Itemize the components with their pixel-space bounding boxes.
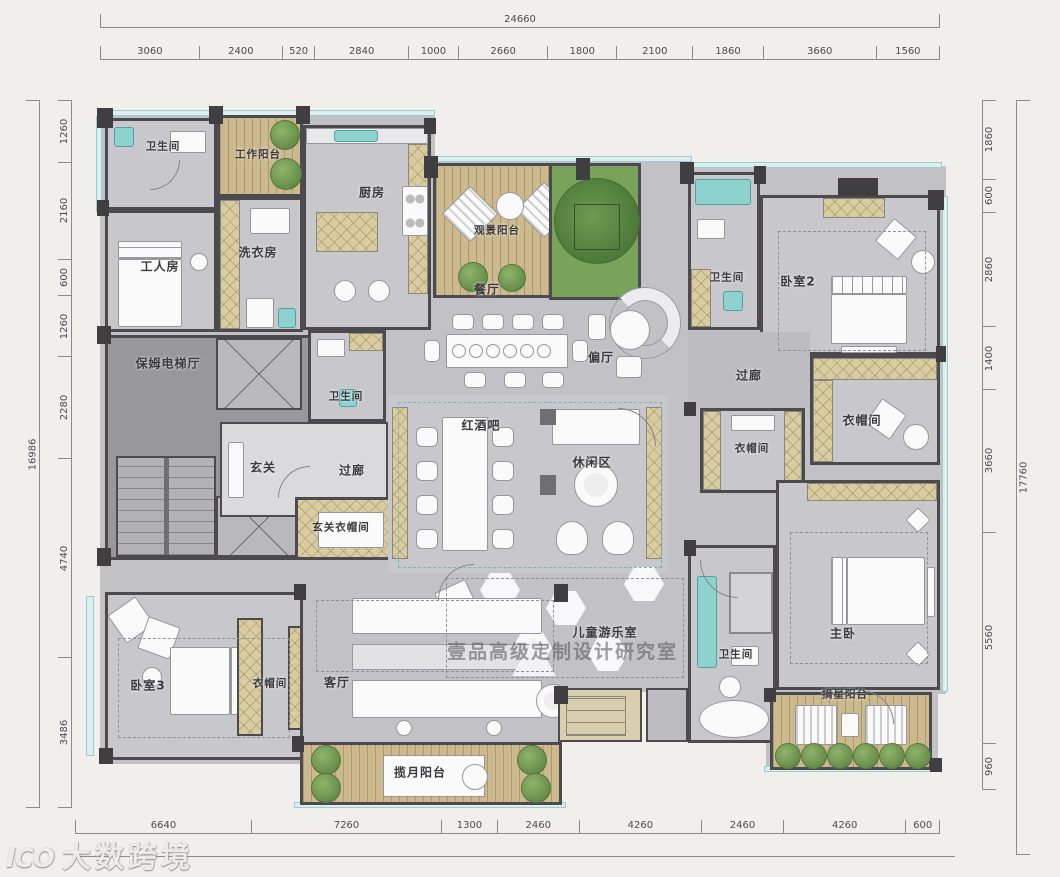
wardrobe xyxy=(784,411,802,490)
plant xyxy=(521,773,551,803)
room-label-cloakroom-middle: 衣帽间 xyxy=(735,441,770,456)
sofa xyxy=(352,680,542,718)
room-bathroom-bedroom2 xyxy=(688,172,760,330)
room-label-bathroom-bedroom2: 卫生间 xyxy=(710,270,745,285)
room-label-bathroom-foyer: 卫生间 xyxy=(329,389,364,404)
wardrobe xyxy=(703,411,721,490)
room-label-kitchen: 厨房 xyxy=(359,184,385,201)
balcony-table xyxy=(841,713,859,737)
wall-block xyxy=(554,584,568,602)
room-kitchen xyxy=(303,125,431,330)
dim-label: 2660 xyxy=(490,46,515,57)
wardrobe xyxy=(823,198,885,218)
laundry-sink xyxy=(278,308,296,328)
stool xyxy=(588,314,606,340)
plate xyxy=(537,344,551,358)
dim-label: 1800 xyxy=(570,46,595,57)
bench xyxy=(228,442,244,498)
stove xyxy=(402,186,428,236)
dim-label: 24660 xyxy=(504,14,536,25)
room-label-bedroom2: 卧室2 xyxy=(780,273,815,290)
dim-segment: 3486 xyxy=(58,657,71,808)
dim-label: 16986 xyxy=(27,438,38,470)
dim-segment: 1260 xyxy=(58,295,71,357)
plate xyxy=(452,344,466,358)
wall-block xyxy=(684,402,696,416)
room-label-cloakroom-bedroom3: 衣帽间 xyxy=(253,676,288,691)
wall-block xyxy=(684,540,696,556)
kitchen-island xyxy=(316,212,378,252)
room-label-worker-room: 工人房 xyxy=(140,258,179,275)
dim-segment: 1800 xyxy=(547,46,616,60)
wall-block xyxy=(99,748,113,764)
vanity xyxy=(349,333,383,351)
wall-block xyxy=(97,326,111,344)
wall-block xyxy=(97,108,113,128)
sink xyxy=(697,219,725,239)
wardrobe xyxy=(807,483,937,501)
plate xyxy=(469,344,483,358)
plant xyxy=(905,743,931,769)
room-label-work-balcony: 工作阳台 xyxy=(235,147,281,162)
dim-segment: 3660 xyxy=(983,389,996,532)
chair xyxy=(424,340,440,362)
dim-segment: 1860 xyxy=(983,100,996,179)
room-cloakroom-master xyxy=(810,355,940,465)
room-label-bathroom-master: 卫生间 xyxy=(719,647,754,662)
bench xyxy=(731,415,775,431)
candle-tray xyxy=(396,720,412,736)
room-label-moon-balcony: 揽月阳台 xyxy=(394,764,446,781)
room-label-foyer: 玄关 xyxy=(250,459,276,476)
dim-label: 2840 xyxy=(349,46,374,57)
chair xyxy=(464,372,486,388)
plant xyxy=(270,120,300,150)
ceiling-outline xyxy=(790,532,928,664)
wall-block xyxy=(936,346,946,362)
room-label-view-balcony: 观景阳台 xyxy=(474,223,520,238)
dim-label: 1260 xyxy=(59,119,70,144)
plant xyxy=(827,743,853,769)
wall-block xyxy=(209,106,223,124)
wall-block xyxy=(680,162,694,184)
brand-watermark: ICO 大数跨境 xyxy=(6,834,194,876)
dim-segment: 4740 xyxy=(58,458,71,657)
wall-block xyxy=(928,190,944,210)
dim-segment: 7260 xyxy=(251,820,441,834)
elevator-shaft xyxy=(216,338,302,410)
studio-watermark: 壹品高级定制设计研究室 xyxy=(447,637,678,664)
plant xyxy=(311,745,341,775)
dim-label: 2280 xyxy=(59,395,70,420)
room-label-corridor-right: 过廊 xyxy=(736,367,762,384)
toilet xyxy=(719,676,741,698)
dim-label: 3660 xyxy=(984,448,995,473)
dim-col-left: 126021606001260228047403486 xyxy=(58,100,72,808)
room-label-bedroom3: 卧室3 xyxy=(130,677,165,694)
dim-segment: 1300 xyxy=(441,820,497,834)
ceiling-outline xyxy=(778,231,926,351)
room-label-star-balcony: 摘星阳台 xyxy=(822,687,868,702)
stool xyxy=(334,280,356,302)
room-label-foyer-cloakroom: 玄关衣帽间 xyxy=(312,520,370,535)
dim-label: 2460 xyxy=(526,820,551,831)
dim-segment: 2100 xyxy=(616,46,692,60)
dim-label: 1260 xyxy=(59,313,70,338)
entry-landing xyxy=(646,688,688,742)
dim-label: 4260 xyxy=(832,820,857,831)
dim-label: 960 xyxy=(984,757,995,776)
dim-segment: 600 xyxy=(905,820,940,834)
dim-label: 4740 xyxy=(59,546,70,571)
dim-label: 1860 xyxy=(984,127,995,152)
candle-tray xyxy=(486,720,502,736)
round-table xyxy=(496,192,524,220)
room-label-cloakroom-master: 衣帽间 xyxy=(842,412,881,429)
dim-label: 2160 xyxy=(59,198,70,223)
round-table xyxy=(610,310,650,350)
wall-block xyxy=(424,156,438,178)
brand-watermark-text: 大数跨境 xyxy=(62,834,194,876)
window-strip xyxy=(96,116,102,212)
wall-block xyxy=(292,736,304,752)
room-label-side-hall: 偏厅 xyxy=(588,349,614,366)
wall-block xyxy=(97,200,109,216)
dim-label: 6640 xyxy=(151,820,176,831)
plant xyxy=(853,743,879,769)
plate xyxy=(520,344,534,358)
room-label-wine-bar: 红酒吧 xyxy=(461,417,500,434)
window-strip xyxy=(690,162,942,168)
chair xyxy=(504,372,526,388)
dim-segment: 1400 xyxy=(983,326,996,388)
brand-logo-icon: ICO xyxy=(6,844,54,874)
wall-block xyxy=(754,166,766,184)
dim-label: 3660 xyxy=(807,46,832,57)
room-label-bathroom-top-left: 卫生间 xyxy=(146,139,181,154)
planter-box xyxy=(574,204,620,250)
dim-segment: 2460 xyxy=(701,820,783,834)
floor-plan-canvas: 卫生间 工作阳台 厨房 工人房 洗衣房 观景阳台 餐厅 偏厅 卫生间 卧室2 保… xyxy=(0,0,1060,877)
plant xyxy=(498,264,526,292)
dim-segment: 5560 xyxy=(983,532,996,743)
wall-block xyxy=(296,106,310,124)
dim-label: 2400 xyxy=(228,46,253,57)
dim-label: 5560 xyxy=(984,625,995,650)
room-label-corridor-foyer: 过廊 xyxy=(339,462,365,479)
dim-segment: 600 xyxy=(58,259,71,295)
dim-col-right-total: 17760 xyxy=(1016,100,1030,855)
dim-segment: 2160 xyxy=(58,162,71,259)
dim-col-right: 18606002860140036605560960 xyxy=(982,100,996,790)
dim-label: 2100 xyxy=(642,46,667,57)
dim-segment: 520 xyxy=(282,46,314,60)
dim-segment: 960 xyxy=(983,743,996,790)
sink xyxy=(317,339,345,357)
room-label-dining: 餐厅 xyxy=(474,281,500,298)
stair-rail xyxy=(164,458,169,555)
sink xyxy=(334,130,378,142)
side-table xyxy=(190,253,208,271)
plant xyxy=(517,745,547,775)
dim-label: 4260 xyxy=(628,820,653,831)
dim-label: 600 xyxy=(59,268,70,287)
wall-block xyxy=(424,118,436,134)
room-label-nanny-hall: 保姆电梯厅 xyxy=(135,355,200,372)
wall-block xyxy=(576,158,590,180)
dim-baseline xyxy=(75,856,955,857)
dim-label: 600 xyxy=(913,820,932,831)
dim-segment: 4260 xyxy=(783,820,905,834)
room-label-leisure: 休闲区 xyxy=(572,454,611,471)
dim-segment: 1260 xyxy=(58,100,71,162)
dim-label: 1000 xyxy=(421,46,446,57)
dim-row-top: 3060240052028401000266018002100186036601… xyxy=(100,46,940,60)
dim-segment: 3060 xyxy=(100,46,199,60)
dim-segment: 6640 xyxy=(75,820,251,834)
oval-bathtub xyxy=(699,700,769,738)
plant xyxy=(270,158,302,190)
window-strip xyxy=(86,596,94,756)
wall-block xyxy=(97,548,111,566)
cabinet xyxy=(246,298,274,328)
dim-label: 520 xyxy=(289,46,308,57)
dim-label: 2860 xyxy=(984,257,995,282)
dim-segment: 600 xyxy=(983,179,996,212)
wardrobe xyxy=(813,380,833,462)
room-side-hall xyxy=(592,288,690,402)
chair xyxy=(512,314,534,330)
toilet xyxy=(723,291,743,311)
dim-segment: 1000 xyxy=(408,46,458,60)
room-label-laundry: 洗衣房 xyxy=(238,244,277,261)
dim-label: 1860 xyxy=(715,46,740,57)
cabinet xyxy=(220,200,240,329)
dim-segment: 2280 xyxy=(58,356,71,458)
wall-block xyxy=(764,688,776,702)
room-label-living: 客厅 xyxy=(324,674,350,691)
room-dining xyxy=(420,298,592,398)
dim-label: 7260 xyxy=(334,820,359,831)
dim-row-bottom: 6640726013002460426024604260600 xyxy=(75,820,940,834)
dim-segment: 3660 xyxy=(763,46,876,60)
chair xyxy=(572,340,588,362)
dim-label: 17760 xyxy=(1018,462,1029,494)
room-label-master-bedroom: 主卧 xyxy=(830,625,856,642)
chair xyxy=(542,314,564,330)
dim-segment: 2660 xyxy=(458,46,547,60)
chair xyxy=(452,314,474,330)
wall-block xyxy=(930,758,942,772)
plant xyxy=(801,743,827,769)
bed-bench xyxy=(927,567,935,617)
wall-block xyxy=(838,178,878,196)
dim-segment: 24660 xyxy=(100,14,940,28)
room-bathroom-foyer xyxy=(308,330,386,422)
decor-diamond xyxy=(905,507,930,532)
room-laundry xyxy=(217,197,303,332)
chair xyxy=(903,424,929,450)
dim-label: 600 xyxy=(984,186,995,205)
entry-steps xyxy=(558,688,642,742)
wall-block xyxy=(554,686,568,704)
dim-segment: 1560 xyxy=(876,46,940,60)
room-star-balcony xyxy=(770,692,932,770)
dim-segment: 16986 xyxy=(26,100,39,808)
dim-segment: 2860 xyxy=(983,212,996,326)
washer xyxy=(250,208,290,234)
dim-label: 1400 xyxy=(984,345,995,370)
dim-label: 1300 xyxy=(457,820,482,831)
chair xyxy=(542,372,564,388)
lounge-chair xyxy=(795,705,837,745)
plate xyxy=(503,344,517,358)
dim-row-top-total: 24660 xyxy=(100,14,940,28)
dim-segment: 4260 xyxy=(579,820,701,834)
plant xyxy=(775,743,801,769)
step-lines xyxy=(566,696,626,736)
dim-label: 3486 xyxy=(59,720,70,745)
stool xyxy=(616,356,642,378)
plant xyxy=(879,743,905,769)
dim-label: 3060 xyxy=(137,46,162,57)
dim-col-left-total: 16986 xyxy=(26,100,40,808)
wardrobe xyxy=(813,358,937,380)
bathtub xyxy=(695,179,751,205)
dim-segment: 17760 xyxy=(1017,100,1030,855)
dim-segment: 1860 xyxy=(692,46,762,60)
stool xyxy=(368,280,390,302)
wall-block xyxy=(294,584,306,600)
dim-label: 2460 xyxy=(730,820,755,831)
shower-icon xyxy=(114,127,134,147)
window-strip xyxy=(428,156,692,162)
window-strip xyxy=(942,196,948,692)
plant xyxy=(311,773,341,803)
dim-segment: 2460 xyxy=(497,820,579,834)
chair xyxy=(482,314,504,330)
bed xyxy=(118,241,182,259)
balcony-stool xyxy=(462,764,488,790)
dim-segment: 2400 xyxy=(199,46,282,60)
vanity xyxy=(691,269,711,327)
dim-label: 1560 xyxy=(895,46,920,57)
plate xyxy=(486,344,500,358)
dim-segment: 2840 xyxy=(314,46,408,60)
tree-planter xyxy=(549,163,641,300)
